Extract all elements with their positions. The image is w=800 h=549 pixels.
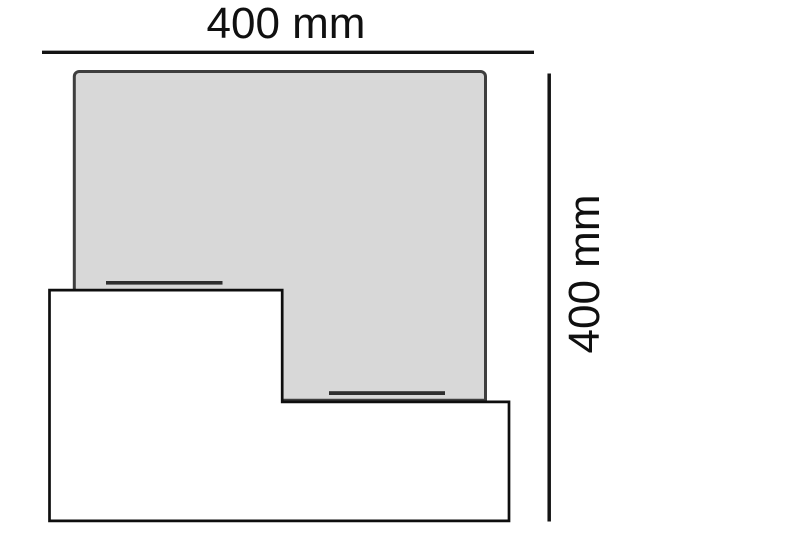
svg-text:400 mm: 400 mm bbox=[560, 195, 609, 354]
svg-text:400 mm: 400 mm bbox=[207, 0, 366, 48]
